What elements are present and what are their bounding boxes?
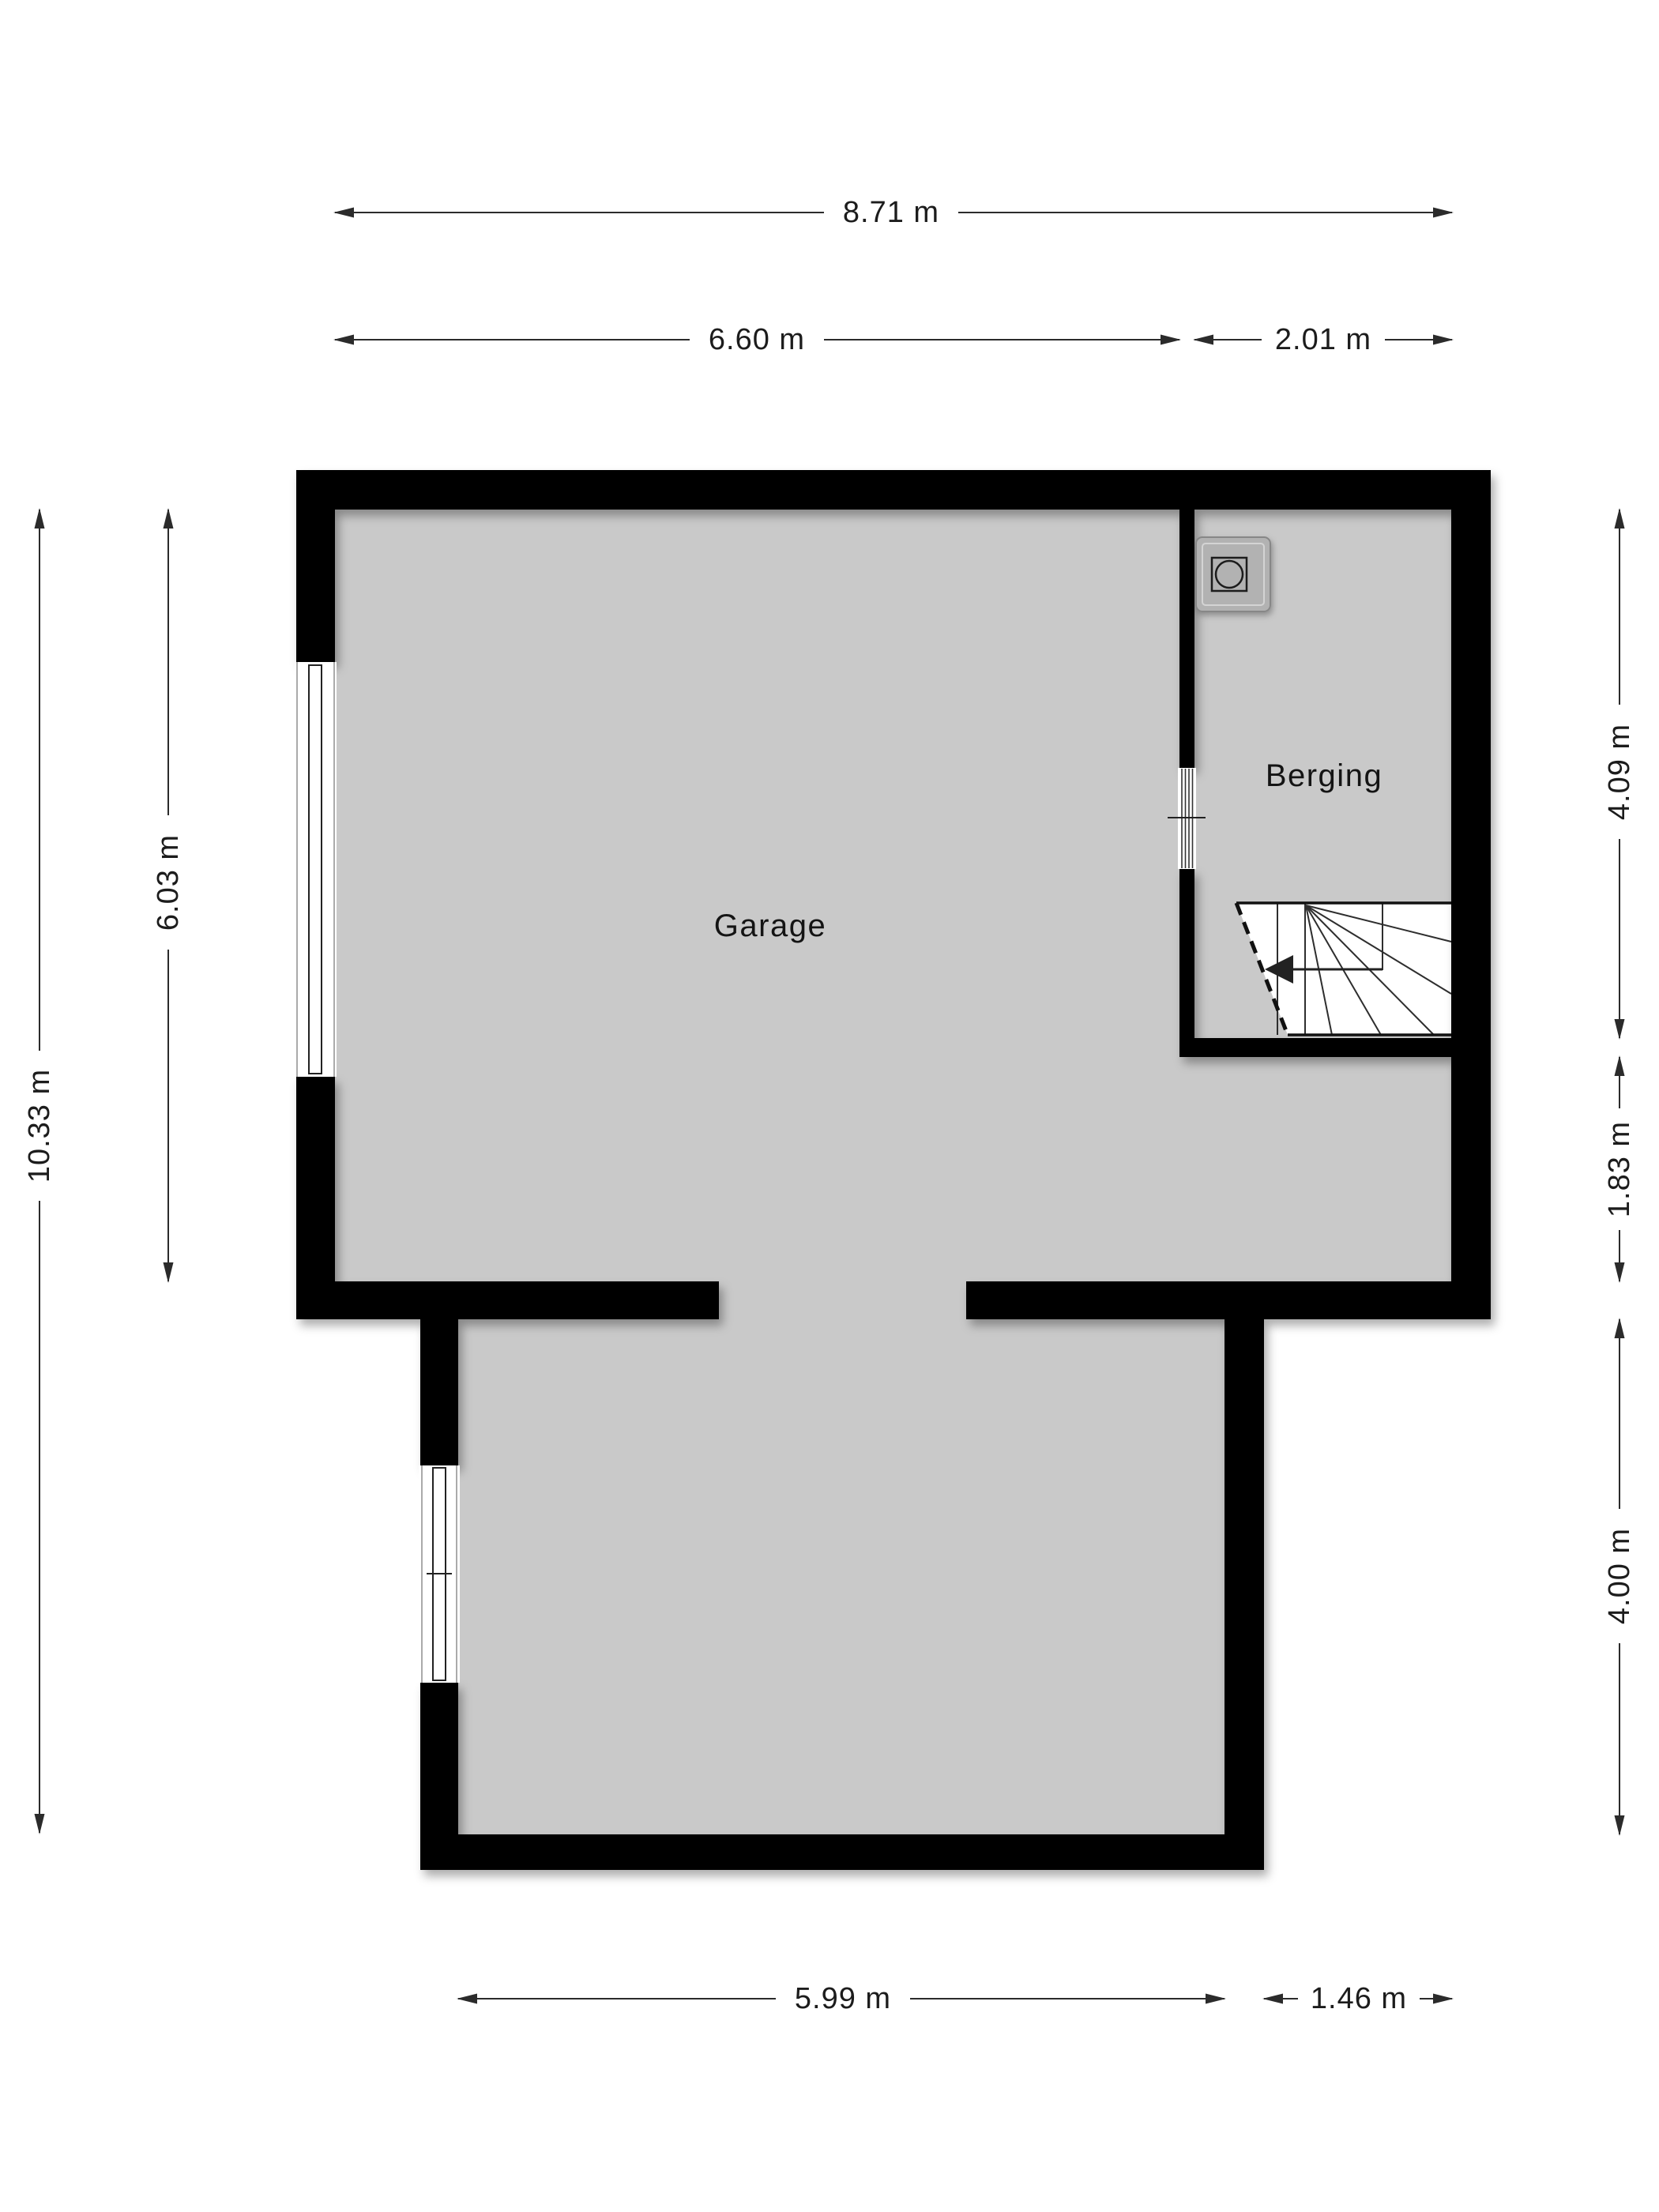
wall-berging-bottom <box>1179 1038 1491 1057</box>
dimension-label-bottom-left: 5.99 m <box>795 1982 891 2015</box>
passage-floor <box>719 1281 966 1319</box>
dimension-label-right-bottom: 4.00 m <box>1603 1528 1636 1624</box>
dimension-label-left-inner: 6.03 m <box>152 834 185 931</box>
wall-interior-berging-lower <box>1179 869 1194 1041</box>
dimension-label-right-mid: 1.83 m <box>1603 1121 1636 1217</box>
wall-lowerroom-left-upper <box>420 1319 458 1465</box>
dimension-label-top-right: 2.01 m <box>1275 323 1371 356</box>
wall-lowerroom-right <box>1224 1319 1264 1870</box>
wall-garage-bottom-right <box>966 1281 1491 1319</box>
lower-room-floor <box>458 1319 1224 1834</box>
room-label-garage: Garage <box>714 908 826 943</box>
wall-lowerroom-bottom <box>420 1834 1264 1870</box>
lower-room-window-icon <box>419 1465 460 1683</box>
window-glass <box>309 665 322 1074</box>
dimension-label-top-total: 8.71 m <box>843 196 939 229</box>
floor-plan-page: Garage Berging <box>0 0 1659 2212</box>
wall-interior-berging-upper <box>1179 510 1194 768</box>
garage-floor <box>335 510 1451 1281</box>
garage-window-icon <box>295 662 337 1077</box>
dimension-label-bottom-right: 1.46 m <box>1311 1982 1407 2015</box>
wall-left-upper <box>296 470 335 662</box>
washer-body <box>1196 537 1270 611</box>
dimension-label-left-total: 10.33 m <box>23 1069 56 1183</box>
dimension-label-top-left: 6.60 m <box>709 323 805 356</box>
floor-plan-svg: Garage Berging <box>0 0 1659 2212</box>
wall-right <box>1451 470 1491 1319</box>
wall-top <box>296 470 1491 510</box>
room-label-berging: Berging <box>1266 758 1382 793</box>
washing-machine-icon <box>1196 537 1270 611</box>
wall-garage-bottom-left <box>296 1281 719 1319</box>
floor-areas <box>335 510 1451 1834</box>
dimension-label-right-top: 4.09 m <box>1603 724 1636 820</box>
